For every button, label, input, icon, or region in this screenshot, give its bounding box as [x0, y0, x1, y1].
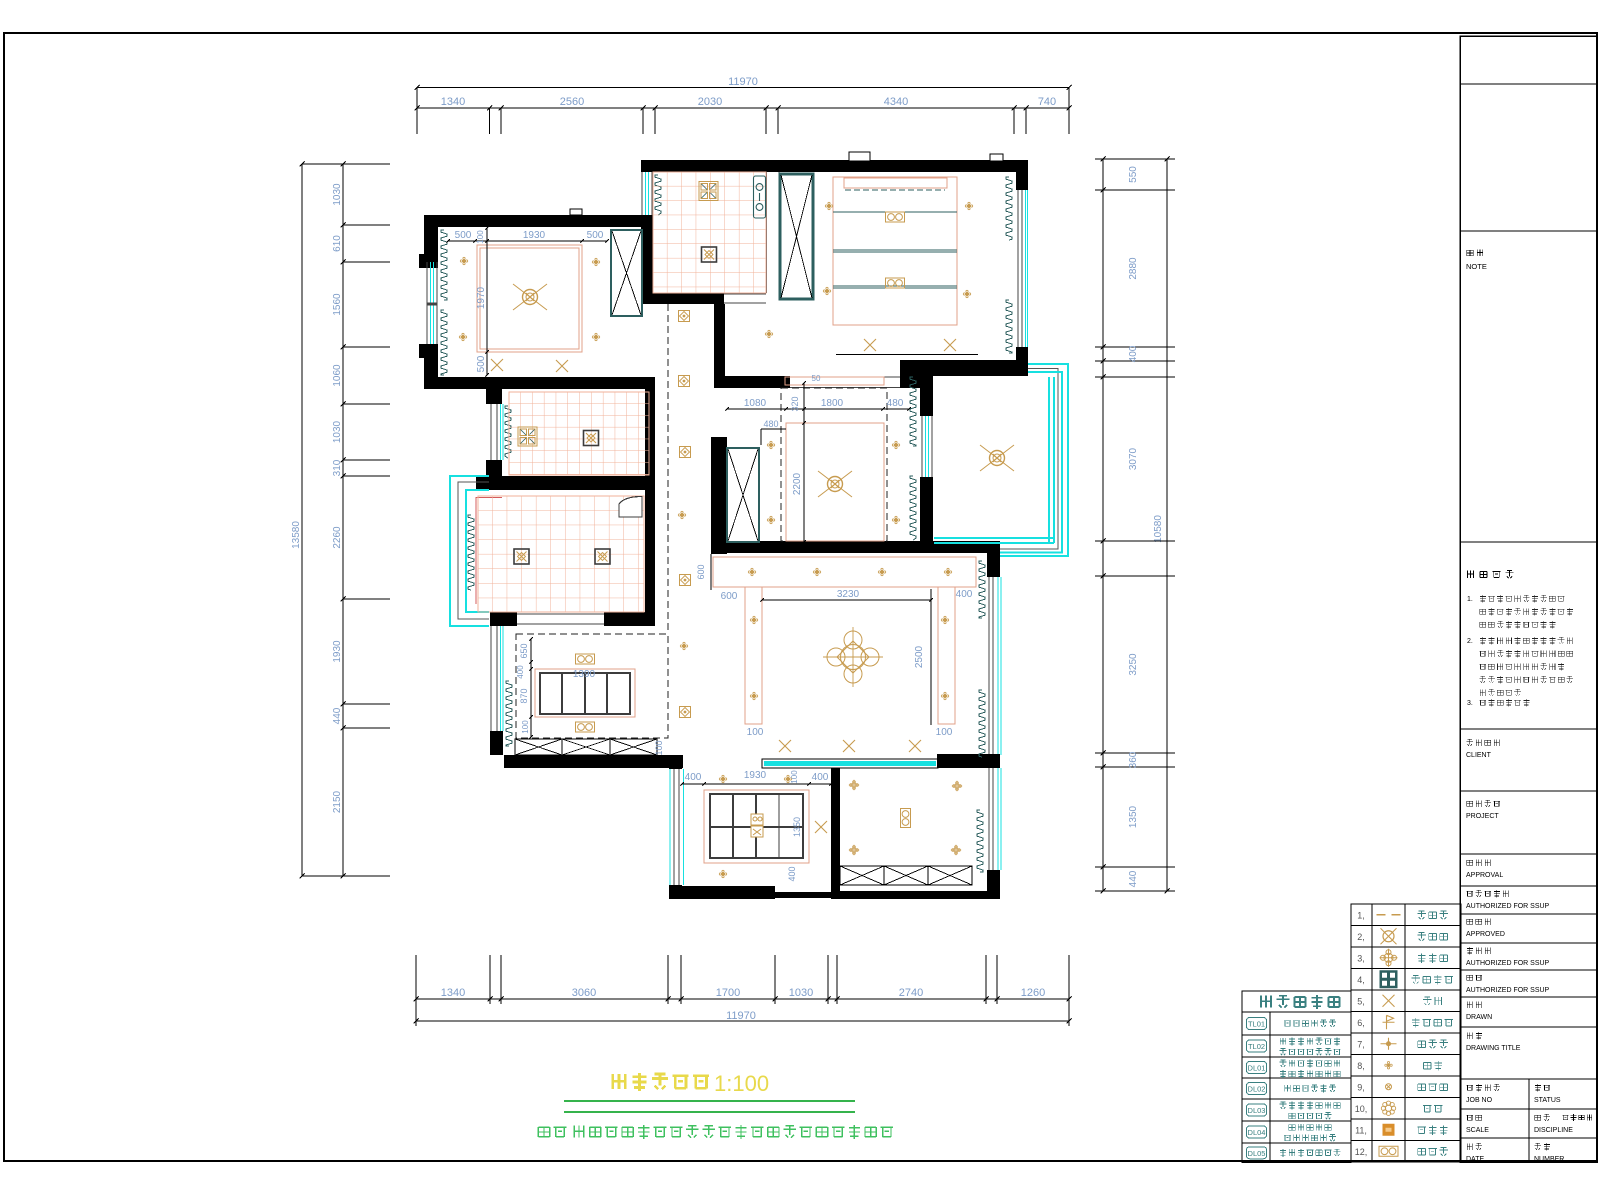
svg-text:1340: 1340 [441, 96, 465, 108]
svg-text:12,: 12, [1355, 1147, 1368, 1157]
svg-text:2560: 2560 [560, 96, 584, 108]
svg-text:3250: 3250 [1128, 653, 1139, 676]
svg-text:5,: 5, [1357, 996, 1365, 1006]
svg-text:AUTHORIZED FOR SSUP: AUTHORIZED FOR SSUP [1466, 960, 1550, 967]
svg-text:TL01: TL01 [1248, 1020, 1265, 1029]
svg-text:2,: 2, [1357, 932, 1365, 942]
svg-text:DL03: DL03 [1248, 1106, 1266, 1115]
svg-text:JOB NO: JOB NO [1466, 1097, 1493, 1104]
svg-text:1030: 1030 [332, 420, 343, 443]
svg-text:1060: 1060 [332, 364, 343, 387]
svg-text:2880: 2880 [1128, 257, 1139, 280]
svg-text:100: 100 [936, 727, 953, 738]
svg-text:10,: 10, [1355, 1104, 1368, 1114]
svg-text:400: 400 [787, 866, 797, 881]
svg-text:DL04: DL04 [1248, 1128, 1266, 1137]
svg-text:CLIENT: CLIENT [1466, 752, 1492, 759]
svg-text:1390: 1390 [573, 669, 596, 680]
svg-text:1350: 1350 [1128, 805, 1139, 828]
svg-text:AUTHORIZED FOR SSUP: AUTHORIZED FOR SSUP [1466, 987, 1550, 994]
svg-text:NUMBER: NUMBER [1534, 1156, 1564, 1163]
svg-text:1030: 1030 [332, 183, 343, 206]
svg-text:6,: 6, [1357, 1018, 1365, 1028]
svg-text:STATUS: STATUS [1534, 1097, 1561, 1104]
svg-text:1080: 1080 [744, 398, 767, 409]
svg-text:DL05: DL05 [1248, 1149, 1266, 1158]
svg-text:2200: 2200 [792, 472, 803, 495]
svg-text:9,: 9, [1357, 1082, 1365, 1092]
svg-text:PROJECT: PROJECT [1466, 813, 1499, 820]
svg-text:3230: 3230 [837, 589, 860, 600]
svg-text:50: 50 [812, 374, 821, 383]
svg-text:4,: 4, [1357, 975, 1365, 985]
svg-text:1930: 1930 [744, 770, 767, 781]
svg-text:440: 440 [1128, 870, 1139, 887]
svg-text:DRAWN: DRAWN [1466, 1014, 1492, 1021]
svg-text:1030: 1030 [789, 987, 813, 999]
svg-text:1340: 1340 [441, 987, 465, 999]
svg-text:APPROVAL: APPROVAL [1466, 872, 1503, 879]
svg-text:2740: 2740 [899, 987, 923, 999]
svg-text:1,: 1, [1357, 910, 1365, 920]
svg-text:1260: 1260 [1021, 987, 1045, 999]
svg-text:1930: 1930 [523, 230, 546, 241]
svg-text:360: 360 [1128, 751, 1139, 768]
svg-text:500: 500 [455, 230, 472, 241]
svg-text:2500: 2500 [914, 645, 925, 668]
svg-text:DATE: DATE [1466, 1156, 1484, 1163]
svg-text:500: 500 [587, 230, 604, 241]
svg-text:8,: 8, [1357, 1061, 1365, 1071]
svg-text:1560: 1560 [332, 293, 343, 316]
svg-text:870: 870 [519, 688, 529, 703]
svg-text:2260: 2260 [332, 526, 343, 549]
svg-text:1800: 1800 [821, 398, 844, 409]
svg-text:7,: 7, [1357, 1039, 1365, 1049]
svg-text:11970: 11970 [726, 1010, 756, 1022]
svg-text:DISCIPLINE: DISCIPLINE [1534, 1127, 1573, 1134]
svg-text:3060: 3060 [572, 987, 596, 999]
svg-text:400: 400 [812, 772, 829, 783]
svg-text:500: 500 [476, 355, 487, 372]
svg-text:1970: 1970 [476, 286, 487, 309]
svg-text:DL01: DL01 [1248, 1064, 1266, 1073]
svg-text:10580: 10580 [1153, 515, 1164, 543]
svg-text:3,: 3, [1357, 953, 1365, 963]
svg-text:1930: 1930 [332, 640, 343, 663]
svg-text:AUTHORIZED FOR SSUP: AUTHORIZED FOR SSUP [1466, 903, 1550, 910]
svg-text:480: 480 [887, 398, 904, 409]
svg-text:APPROVED: APPROVED [1466, 931, 1505, 938]
svg-text:320: 320 [790, 396, 800, 411]
svg-text:1.: 1. [1467, 596, 1473, 603]
svg-text:100: 100 [476, 230, 485, 244]
svg-text:650: 650 [519, 643, 529, 658]
svg-text:610: 610 [332, 235, 343, 252]
svg-text:11970: 11970 [728, 76, 758, 88]
svg-text:100: 100 [790, 770, 799, 784]
svg-text:480: 480 [763, 419, 778, 429]
svg-text:1350: 1350 [792, 817, 802, 837]
svg-text:400: 400 [956, 589, 973, 600]
svg-text:100: 100 [747, 727, 764, 738]
svg-text:440: 440 [332, 707, 343, 724]
svg-text:400: 400 [516, 665, 525, 679]
svg-text:11,: 11, [1355, 1125, 1367, 1135]
svg-text:DL02: DL02 [1248, 1085, 1266, 1094]
svg-text:2.: 2. [1467, 638, 1473, 645]
svg-text:1700: 1700 [716, 987, 740, 999]
svg-text:SCALE: SCALE [1466, 1127, 1489, 1134]
svg-text:13580: 13580 [291, 521, 302, 549]
svg-text:NOTE: NOTE [1466, 262, 1487, 271]
svg-text:310: 310 [332, 459, 343, 476]
svg-text:600: 600 [721, 591, 738, 602]
svg-text:400: 400 [1128, 345, 1139, 362]
svg-text:TL02: TL02 [1248, 1042, 1265, 1051]
svg-text:400: 400 [685, 772, 702, 783]
svg-text:100: 100 [654, 740, 664, 755]
svg-text:2150: 2150 [332, 790, 343, 813]
svg-text:1:100: 1:100 [714, 1071, 769, 1096]
svg-text:100: 100 [521, 720, 530, 734]
svg-text:550: 550 [1128, 166, 1139, 183]
svg-text:3070: 3070 [1128, 447, 1139, 470]
svg-text:3.: 3. [1467, 700, 1473, 707]
svg-text:DRAWING TITLE: DRAWING TITLE [1466, 1045, 1521, 1052]
svg-text:740: 740 [1038, 96, 1056, 108]
svg-text:4340: 4340 [884, 96, 908, 108]
svg-text:2030: 2030 [698, 96, 722, 108]
svg-text:600: 600 [696, 564, 706, 579]
